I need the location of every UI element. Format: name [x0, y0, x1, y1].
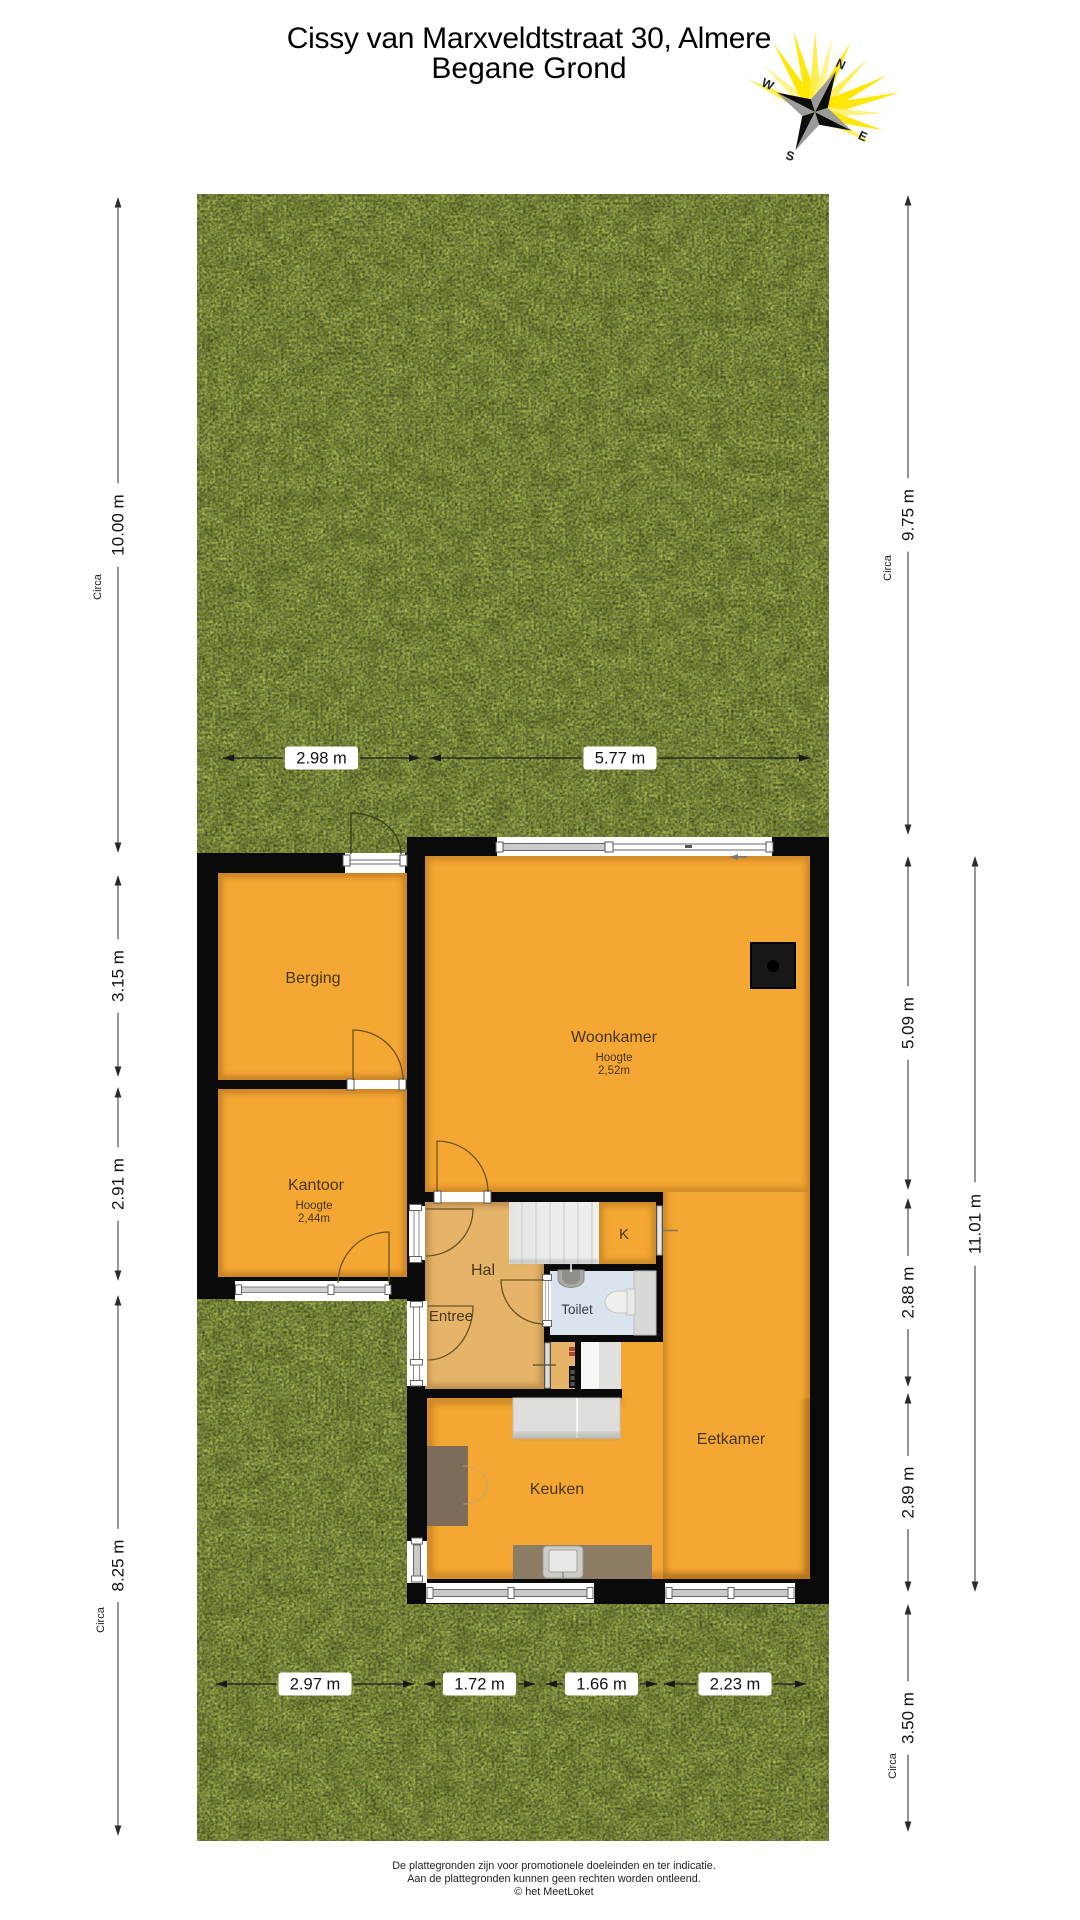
svg-text:2.97 m: 2.97 m — [290, 1676, 340, 1694]
svg-text:2,52m: 2,52m — [598, 1065, 630, 1077]
svg-text:3.15 m: 3.15 m — [109, 950, 128, 1002]
svg-text:Eetkamer: Eetkamer — [697, 1431, 766, 1448]
svg-text:Circa: Circa — [887, 1752, 899, 1779]
svg-text:2.88 m: 2.88 m — [899, 1267, 918, 1319]
svg-text:10.00 m: 10.00 m — [109, 494, 128, 555]
svg-text:11.01 m: 11.01 m — [966, 1194, 985, 1254]
svg-text:Hoogte: Hoogte — [295, 1200, 332, 1212]
svg-text:Entree: Entree — [429, 1308, 473, 1325]
svg-text:2.98 m: 2.98 m — [296, 750, 346, 768]
svg-text:Cissy van Marxveldtstraat 30,: Cissy van Marxveldtstraat 30, Almere — [287, 22, 771, 55]
svg-text:Hal: Hal — [471, 1262, 495, 1279]
svg-text:3.50 m: 3.50 m — [899, 1692, 918, 1744]
svg-text:2.89 m: 2.89 m — [899, 1467, 918, 1519]
svg-text:Aan de plattegronden kunnen ge: Aan de plattegronden kunnen geen rechten… — [407, 1873, 701, 1885]
svg-text:2.91 m: 2.91 m — [109, 1158, 128, 1210]
svg-text:5.77 m: 5.77 m — [595, 750, 645, 768]
svg-text:Toilet: Toilet — [561, 1302, 593, 1317]
svg-text:Berging: Berging — [285, 970, 340, 987]
svg-text:2,44m: 2,44m — [298, 1213, 330, 1225]
svg-text:De plattegronden zijn voor pro: De plattegronden zijn voor promotionele … — [392, 1860, 716, 1872]
svg-text:Circa: Circa — [882, 554, 894, 581]
svg-text:Hoogte: Hoogte — [595, 1052, 632, 1064]
svg-text:Begane Grond: Begane Grond — [431, 52, 626, 85]
svg-text:Circa: Circa — [92, 573, 104, 600]
svg-text:Keuken: Keuken — [530, 1481, 584, 1498]
svg-text:9.75 m: 9.75 m — [899, 489, 918, 541]
svg-text:Circa: Circa — [95, 1606, 107, 1633]
svg-text:Kantoor: Kantoor — [288, 1177, 345, 1194]
svg-text:Woonkamer: Woonkamer — [571, 1029, 658, 1046]
svg-text:© het MeetLoket: © het MeetLoket — [514, 1886, 593, 1898]
svg-text:1.66 m: 1.66 m — [576, 1676, 626, 1694]
svg-text:2.23 m: 2.23 m — [710, 1676, 760, 1694]
svg-text:5.09 m: 5.09 m — [899, 997, 918, 1049]
svg-text:1.72 m: 1.72 m — [454, 1676, 504, 1694]
svg-text:8.25 m: 8.25 m — [109, 1540, 128, 1592]
svg-text:K: K — [619, 1226, 629, 1243]
